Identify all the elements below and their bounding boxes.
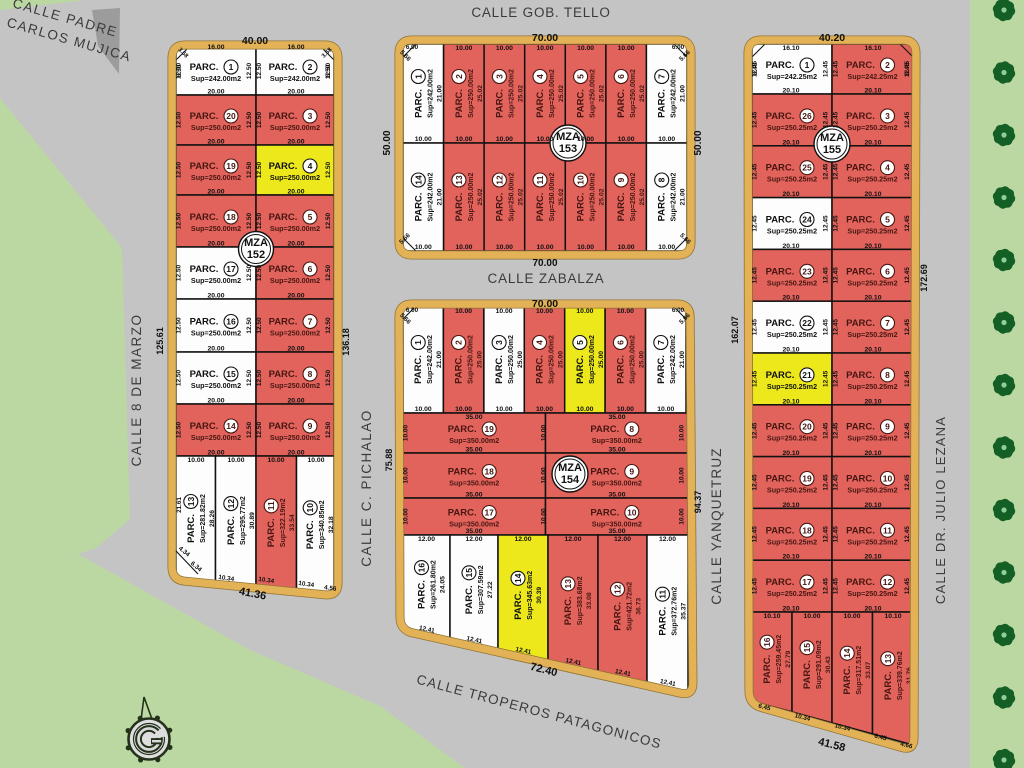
svg-text:Sup=242.00m2: Sup=242.00m2	[427, 69, 434, 118]
svg-text:25.00: 25.00	[517, 351, 524, 368]
svg-text:PARC.: PARC.	[657, 89, 668, 118]
svg-text:12.50: 12.50	[246, 317, 253, 334]
svg-text:27.22: 27.22	[487, 581, 494, 598]
svg-text:10.00: 10.00	[536, 244, 553, 251]
svg-text:Sup=250.00m2: Sup=250.00m2	[191, 224, 241, 233]
svg-text:14: 14	[226, 421, 236, 431]
svg-text:10: 10	[305, 503, 315, 513]
svg-text:PARC.: PARC.	[656, 355, 667, 384]
svg-text:Sup=250.25m2: Sup=250.25m2	[767, 434, 817, 443]
svg-text:Sup=421.72m2: Sup=421.72m2	[627, 582, 634, 631]
svg-text:Sup=250.25m2: Sup=250.25m2	[847, 486, 897, 495]
svg-text:Sup=383.68m2: Sup=383.68m2	[577, 576, 584, 625]
svg-text:16.00: 16.00	[207, 44, 224, 51]
svg-text:PARC.: PARC.	[613, 602, 624, 631]
svg-text:10: 10	[576, 175, 586, 185]
svg-text:12: 12	[613, 584, 623, 594]
svg-text:PARC.: PARC.	[190, 161, 219, 172]
svg-text:CALLE 8 DE MARZO: CALLE 8 DE MARZO	[129, 313, 144, 466]
svg-text:10.00: 10.00	[187, 457, 204, 464]
svg-text:Sup=250.25m2: Sup=250.25m2	[847, 123, 897, 132]
svg-text:PARC.: PARC.	[190, 421, 219, 432]
svg-text:Sup=259.45m2: Sup=259.45m2	[776, 635, 783, 684]
svg-text:9: 9	[629, 467, 634, 477]
svg-text:Sup=250.00m2: Sup=250.00m2	[590, 172, 597, 221]
svg-text:12.50: 12.50	[176, 369, 183, 386]
svg-text:PARC.: PARC.	[269, 317, 298, 328]
svg-text:PARC.: PARC.	[494, 355, 505, 384]
svg-text:20.10: 20.10	[782, 347, 799, 354]
svg-text:20.10: 20.10	[864, 606, 881, 613]
svg-text:153: 153	[559, 143, 577, 155]
svg-text:3: 3	[308, 111, 313, 121]
svg-text:PARC.: PARC.	[535, 89, 546, 118]
svg-text:25.02: 25.02	[599, 85, 606, 102]
svg-text:21.00: 21.00	[679, 351, 686, 368]
svg-text:21.00: 21.00	[436, 351, 443, 368]
svg-text:10.00: 10.00	[576, 406, 593, 413]
svg-text:20.00: 20.00	[207, 139, 224, 146]
svg-text:30.43: 30.43	[825, 656, 832, 673]
svg-text:20.10: 20.10	[782, 243, 799, 250]
svg-text:75.88: 75.88	[384, 449, 394, 472]
svg-text:10.00: 10.00	[455, 244, 472, 251]
svg-text:70.00: 70.00	[532, 32, 558, 44]
svg-text:6: 6	[308, 264, 313, 274]
svg-text:PARC.: PARC.	[590, 467, 619, 478]
svg-text:25: 25	[802, 163, 812, 173]
svg-text:12.50: 12.50	[256, 421, 263, 438]
svg-text:Sup=250.25m2: Sup=250.25m2	[767, 278, 817, 287]
svg-text:PARC.: PARC.	[658, 607, 669, 636]
svg-text:17: 17	[802, 577, 812, 587]
svg-text:Sup=340.85m2: Sup=340.85m2	[319, 500, 326, 549]
svg-text:10.00: 10.00	[577, 244, 594, 251]
svg-text:12.45: 12.45	[904, 319, 911, 336]
svg-text:30.39: 30.39	[536, 587, 543, 604]
svg-text:PARC.: PARC.	[454, 89, 465, 118]
svg-text:20: 20	[802, 422, 812, 432]
svg-text:16: 16	[762, 637, 772, 647]
svg-text:15: 15	[464, 568, 474, 578]
svg-text:13: 13	[454, 175, 464, 185]
svg-text:20.10: 20.10	[782, 502, 799, 509]
svg-text:10.00: 10.00	[617, 308, 634, 315]
svg-text:Sup=250.00m2: Sup=250.00m2	[630, 69, 637, 118]
svg-text:25.02: 25.02	[639, 85, 646, 102]
svg-text:PARC.: PARC.	[766, 163, 795, 174]
svg-text:Sup=250.00m2: Sup=250.00m2	[549, 335, 556, 384]
svg-text:Sup=250.00m2: Sup=250.00m2	[508, 69, 515, 118]
svg-text:PARC.: PARC.	[762, 655, 773, 684]
svg-text:PARC.: PARC.	[269, 264, 298, 275]
svg-text:12.45: 12.45	[904, 422, 911, 439]
svg-text:12.45: 12.45	[823, 370, 830, 387]
svg-text:5: 5	[885, 215, 890, 225]
svg-text:20.10: 20.10	[782, 88, 799, 95]
svg-text:12.45: 12.45	[752, 578, 759, 595]
svg-text:PARC.: PARC.	[494, 193, 505, 222]
svg-text:70.00: 70.00	[532, 258, 557, 269]
svg-text:PARC.: PARC.	[766, 111, 795, 122]
svg-text:10.00: 10.00	[618, 45, 635, 52]
svg-text:PARC.: PARC.	[535, 193, 546, 222]
svg-text:20.00: 20.00	[207, 241, 224, 248]
svg-text:Sup=250.00m2: Sup=250.00m2	[191, 123, 241, 132]
svg-text:50.00: 50.00	[382, 130, 393, 155]
svg-text:Sup=350.00m2: Sup=350.00m2	[592, 436, 642, 445]
svg-text:12.45: 12.45	[752, 111, 759, 128]
svg-text:10.00: 10.00	[576, 308, 593, 315]
svg-text:11: 11	[266, 501, 276, 510]
svg-text:Sup=250.00m2: Sup=250.00m2	[508, 335, 515, 384]
svg-text:6: 6	[885, 266, 890, 276]
svg-text:13: 13	[563, 579, 573, 589]
svg-text:Sup=250.25m2: Sup=250.25m2	[767, 227, 817, 236]
svg-text:12.45: 12.45	[833, 474, 840, 491]
svg-text:12.45: 12.45	[833, 526, 840, 543]
svg-text:10.10: 10.10	[763, 613, 780, 620]
svg-text:Sup=250.25m2: Sup=250.25m2	[767, 486, 817, 495]
svg-text:12.45: 12.45	[833, 267, 840, 284]
svg-text:PARC.: PARC.	[513, 591, 524, 620]
svg-text:20.00: 20.00	[207, 293, 224, 300]
svg-text:PARC.: PARC.	[846, 422, 875, 433]
svg-text:12.50: 12.50	[246, 62, 253, 79]
svg-text:12.45: 12.45	[752, 267, 759, 284]
svg-text:20.10: 20.10	[864, 243, 881, 250]
svg-text:PARC.: PARC.	[766, 60, 795, 71]
svg-text:162.07: 162.07	[730, 316, 740, 344]
svg-text:2: 2	[454, 340, 464, 345]
svg-text:20.10: 20.10	[864, 88, 881, 95]
svg-text:Sup=307.59m2: Sup=307.59m2	[478, 565, 485, 614]
svg-text:19: 19	[226, 161, 236, 171]
svg-text:40.20: 40.20	[819, 32, 845, 44]
svg-text:10.00: 10.00	[455, 45, 472, 52]
svg-text:10.00: 10.00	[403, 508, 410, 525]
svg-text:6: 6	[615, 340, 625, 345]
svg-text:10.00: 10.00	[307, 457, 324, 464]
svg-text:2: 2	[454, 74, 464, 79]
svg-text:26: 26	[802, 111, 812, 121]
svg-text:20.00: 20.00	[287, 241, 304, 248]
svg-text:PARC.: PARC.	[413, 355, 424, 384]
svg-text:12.50: 12.50	[176, 317, 183, 334]
svg-text:Sup=250.00m2: Sup=250.00m2	[191, 329, 241, 338]
svg-text:20.00: 20.00	[287, 450, 304, 457]
svg-text:PARC.: PARC.	[305, 520, 316, 549]
svg-text:7: 7	[308, 317, 313, 327]
svg-text:10.00: 10.00	[679, 424, 686, 441]
svg-text:12.50: 12.50	[325, 421, 332, 438]
svg-text:12.50: 12.50	[256, 317, 263, 334]
svg-text:20.00: 20.00	[207, 450, 224, 457]
svg-text:Sup=250.25m2: Sup=250.25m2	[847, 278, 897, 287]
svg-text:8: 8	[308, 369, 313, 379]
svg-text:9: 9	[885, 422, 890, 432]
svg-text:25.02: 25.02	[517, 85, 524, 102]
svg-text:20: 20	[226, 111, 236, 121]
svg-text:9: 9	[616, 177, 626, 182]
svg-text:11: 11	[883, 525, 892, 535]
svg-text:7: 7	[885, 318, 890, 328]
svg-text:10.00: 10.00	[403, 467, 410, 484]
svg-text:PARC.: PARC.	[535, 355, 546, 384]
svg-text:Sup=250.00m2: Sup=250.00m2	[270, 329, 320, 338]
svg-text:4: 4	[535, 340, 545, 345]
svg-text:20.10: 20.10	[782, 191, 799, 198]
svg-text:PARC.: PARC.	[846, 577, 875, 588]
svg-text:PARC.: PARC.	[190, 212, 219, 223]
svg-text:PARC.: PARC.	[190, 111, 219, 122]
svg-text:10.00: 10.00	[577, 136, 594, 143]
svg-text:12.50: 12.50	[325, 111, 332, 128]
svg-text:12.45: 12.45	[823, 578, 830, 595]
svg-text:Sup=250.25m2: Sup=250.25m2	[767, 382, 817, 391]
svg-text:10.00: 10.00	[496, 45, 513, 52]
svg-text:33.54: 33.54	[289, 514, 296, 531]
svg-text:20.00: 20.00	[287, 189, 304, 196]
svg-text:Sup=317.51m2: Sup=317.51m2	[856, 646, 863, 695]
svg-text:12.45: 12.45	[823, 215, 830, 232]
svg-text:10.00: 10.00	[658, 136, 675, 143]
svg-text:PARC.: PARC.	[766, 215, 795, 226]
svg-text:Sup=250.00m2: Sup=250.00m2	[468, 69, 475, 118]
svg-text:Sup=250.00m2: Sup=250.00m2	[590, 69, 597, 118]
svg-text:12.50: 12.50	[325, 369, 332, 386]
svg-text:12.45: 12.45	[833, 319, 840, 336]
svg-text:Sup=250.25m2: Sup=250.25m2	[847, 175, 897, 184]
svg-text:25.02: 25.02	[639, 188, 646, 205]
svg-text:21: 21	[802, 370, 812, 380]
svg-text:PARC.: PARC.	[563, 596, 574, 625]
svg-text:10.00: 10.00	[541, 467, 548, 484]
svg-text:10.00: 10.00	[496, 244, 513, 251]
svg-text:12.45: 12.45	[904, 111, 911, 128]
svg-text:PARC.: PARC.	[616, 89, 627, 118]
svg-text:12.45: 12.45	[904, 370, 911, 387]
svg-text:12.50: 12.50	[256, 212, 263, 229]
svg-text:13: 13	[186, 497, 196, 507]
svg-text:10.00: 10.00	[536, 406, 553, 413]
svg-text:25.00: 25.00	[558, 351, 565, 368]
svg-text:12.45: 12.45	[904, 163, 911, 180]
svg-text:18: 18	[484, 467, 494, 477]
svg-text:Sup=250.25m2: Sup=250.25m2	[847, 227, 897, 236]
svg-text:11: 11	[535, 175, 545, 184]
svg-text:20.00: 20.00	[207, 89, 224, 96]
svg-text:Sup=242.00m2: Sup=242.00m2	[671, 172, 678, 221]
svg-text:Sup=250.25m2: Sup=250.25m2	[767, 589, 817, 598]
svg-text:21.61: 21.61	[176, 497, 183, 513]
svg-text:MZA: MZA	[820, 132, 844, 144]
svg-text:3: 3	[494, 340, 504, 345]
svg-text:PARC.: PARC.	[842, 666, 853, 695]
svg-text:PARC.: PARC.	[766, 577, 795, 588]
svg-text:12.50: 12.50	[256, 369, 263, 386]
svg-text:10.00: 10.00	[843, 613, 860, 620]
svg-text:12.45: 12.45	[904, 267, 911, 284]
svg-text:1: 1	[413, 340, 423, 345]
svg-text:12.50: 12.50	[176, 264, 183, 281]
svg-text:20.10: 20.10	[782, 398, 799, 405]
svg-text:12.50: 12.50	[325, 161, 332, 178]
svg-text:PARC.: PARC.	[494, 89, 505, 118]
svg-text:20.10: 20.10	[782, 554, 799, 561]
svg-text:Sup=339.76m2: Sup=339.76m2	[897, 651, 904, 700]
svg-text:PARC.: PARC.	[269, 161, 298, 172]
svg-text:8: 8	[885, 370, 890, 380]
svg-text:25.00: 25.00	[477, 351, 484, 368]
svg-text:PARC.: PARC.	[657, 193, 668, 222]
svg-text:12.45: 12.45	[752, 215, 759, 232]
svg-text:172.69: 172.69	[919, 264, 929, 292]
svg-text:Sup=242.00m2: Sup=242.00m2	[427, 172, 434, 221]
svg-text:12.50: 12.50	[176, 212, 183, 229]
svg-text:Sup=372.76m2: Sup=372.76m2	[672, 587, 679, 636]
svg-text:10.00: 10.00	[536, 45, 553, 52]
svg-text:Sup=242.00m2: Sup=242.00m2	[191, 74, 241, 83]
svg-text:Sup=322.19m2: Sup=322.19m2	[280, 498, 287, 547]
svg-text:12.45: 12.45	[833, 111, 840, 128]
svg-text:Sup=250.00m2: Sup=250.00m2	[468, 335, 475, 384]
svg-text:14: 14	[513, 573, 523, 583]
svg-text:12.45: 12.45	[833, 215, 840, 232]
svg-text:19: 19	[484, 424, 494, 434]
svg-text:Sup=250.25m2: Sup=250.25m2	[847, 434, 897, 443]
svg-text:PARC.: PARC.	[590, 424, 619, 435]
svg-text:12.45: 12.45	[833, 578, 840, 595]
svg-text:Sup=250.00m2: Sup=250.00m2	[270, 123, 320, 132]
svg-text:1: 1	[805, 60, 810, 70]
svg-text:Sup=250.00m2: Sup=250.00m2	[589, 335, 596, 384]
svg-text:PARC.: PARC.	[846, 60, 875, 71]
svg-text:12.00: 12.00	[564, 536, 581, 543]
svg-text:Sup=250.00m2: Sup=250.00m2	[549, 69, 556, 118]
svg-text:6.00: 6.00	[672, 44, 685, 51]
svg-text:12.45: 12.45	[752, 163, 759, 180]
svg-text:Sup=250.00m2: Sup=250.00m2	[270, 433, 320, 442]
svg-text:4: 4	[885, 163, 890, 173]
svg-text:10.00: 10.00	[536, 308, 553, 315]
svg-text:8.50: 8.50	[325, 64, 332, 77]
svg-text:35.00: 35.00	[465, 447, 482, 454]
svg-text:12.45: 12.45	[823, 319, 830, 336]
svg-text:8: 8	[657, 177, 667, 182]
svg-text:13: 13	[883, 654, 893, 664]
svg-text:10.00: 10.00	[679, 467, 686, 484]
svg-text:20.00: 20.00	[287, 398, 304, 405]
svg-text:12: 12	[494, 175, 504, 185]
svg-text:25.02: 25.02	[517, 188, 524, 205]
svg-text:CALLE GOB. TELLO: CALLE GOB. TELLO	[471, 5, 610, 20]
svg-text:4: 4	[308, 161, 313, 171]
svg-text:16.10: 16.10	[782, 45, 799, 52]
svg-text:21.00: 21.00	[436, 188, 443, 205]
svg-text:10.00: 10.00	[803, 613, 820, 620]
svg-text:PARC.: PARC.	[846, 163, 875, 174]
svg-text:Sup=295.77m2: Sup=295.77m2	[240, 496, 247, 545]
svg-text:35.00: 35.00	[608, 492, 625, 499]
svg-text:Sup=250.25m2: Sup=250.25m2	[847, 382, 897, 391]
svg-text:PARC.: PARC.	[590, 508, 619, 519]
svg-text:50.00: 50.00	[693, 130, 704, 155]
svg-text:12.45: 12.45	[833, 370, 840, 387]
svg-text:20.00: 20.00	[287, 89, 304, 96]
svg-text:Sup=242.00m2: Sup=242.00m2	[671, 69, 678, 118]
svg-text:5: 5	[576, 74, 586, 79]
svg-text:PARC.: PARC.	[417, 580, 428, 609]
svg-text:23: 23	[802, 266, 812, 276]
svg-text:PARC.: PARC.	[454, 355, 465, 384]
svg-text:2: 2	[308, 62, 313, 72]
svg-text:20.10: 20.10	[782, 295, 799, 302]
svg-text:12.45: 12.45	[823, 60, 830, 77]
svg-text:20.00: 20.00	[287, 293, 304, 300]
svg-text:PARC.: PARC.	[802, 660, 813, 689]
svg-text:PARC.: PARC.	[448, 508, 477, 519]
svg-text:Sup=281.82m2: Sup=281.82m2	[200, 494, 207, 543]
svg-text:8.46: 8.46	[904, 62, 911, 75]
svg-text:12.50: 12.50	[246, 264, 253, 281]
svg-text:8: 8	[629, 424, 634, 434]
svg-text:36.73: 36.73	[636, 598, 643, 615]
svg-text:10.00: 10.00	[455, 136, 472, 143]
svg-text:MZA: MZA	[558, 462, 582, 474]
svg-text:Sup=242.00m2: Sup=242.00m2	[270, 74, 320, 83]
svg-text:Sup=350.00m2: Sup=350.00m2	[449, 436, 499, 445]
svg-text:Sup=242.25m2: Sup=242.25m2	[767, 72, 817, 81]
svg-text:20.10: 20.10	[864, 191, 881, 198]
svg-text:10.00: 10.00	[657, 406, 674, 413]
svg-text:PARC.: PARC.	[846, 266, 875, 277]
svg-text:10.00: 10.00	[618, 244, 635, 251]
svg-text:12.45: 12.45	[752, 526, 759, 543]
svg-text:PARC.: PARC.	[190, 264, 219, 275]
svg-text:PARC.: PARC.	[226, 516, 237, 545]
svg-text:PARC.: PARC.	[575, 355, 586, 384]
svg-text:PARC.: PARC.	[190, 369, 219, 380]
svg-text:PARC.: PARC.	[266, 518, 277, 547]
svg-text:16: 16	[226, 317, 236, 327]
svg-text:6.00: 6.00	[672, 307, 685, 314]
svg-text:PARC.: PARC.	[846, 525, 875, 536]
svg-text:10.00: 10.00	[415, 406, 432, 413]
svg-text:PARC.: PARC.	[448, 424, 477, 435]
svg-text:10.00: 10.00	[536, 136, 553, 143]
svg-text:25.02: 25.02	[477, 85, 484, 102]
svg-text:Sup=250.00m2: Sup=250.00m2	[630, 172, 637, 221]
svg-text:Sup=250.25m2: Sup=250.25m2	[767, 175, 817, 184]
svg-text:Sup=250.00m2: Sup=250.00m2	[191, 276, 241, 285]
svg-text:20.00: 20.00	[287, 139, 304, 146]
svg-text:10.00: 10.00	[658, 244, 675, 251]
svg-text:12.50: 12.50	[246, 111, 253, 128]
svg-text:12.50: 12.50	[176, 111, 183, 128]
svg-text:5: 5	[308, 212, 313, 222]
svg-text:12.45: 12.45	[823, 111, 830, 128]
svg-text:14: 14	[413, 175, 423, 185]
svg-text:Sup=250.25m2: Sup=250.25m2	[767, 537, 817, 546]
svg-text:PARC.: PARC.	[883, 671, 894, 700]
svg-text:17: 17	[484, 508, 494, 518]
svg-text:10.00: 10.00	[618, 136, 635, 143]
svg-text:Sup=250.00m2: Sup=250.00m2	[191, 173, 241, 182]
svg-text:Sup=350.00m2: Sup=350.00m2	[449, 479, 499, 488]
svg-text:Sup=242.00m2: Sup=242.00m2	[670, 335, 677, 384]
svg-text:12.00: 12.00	[614, 536, 631, 543]
